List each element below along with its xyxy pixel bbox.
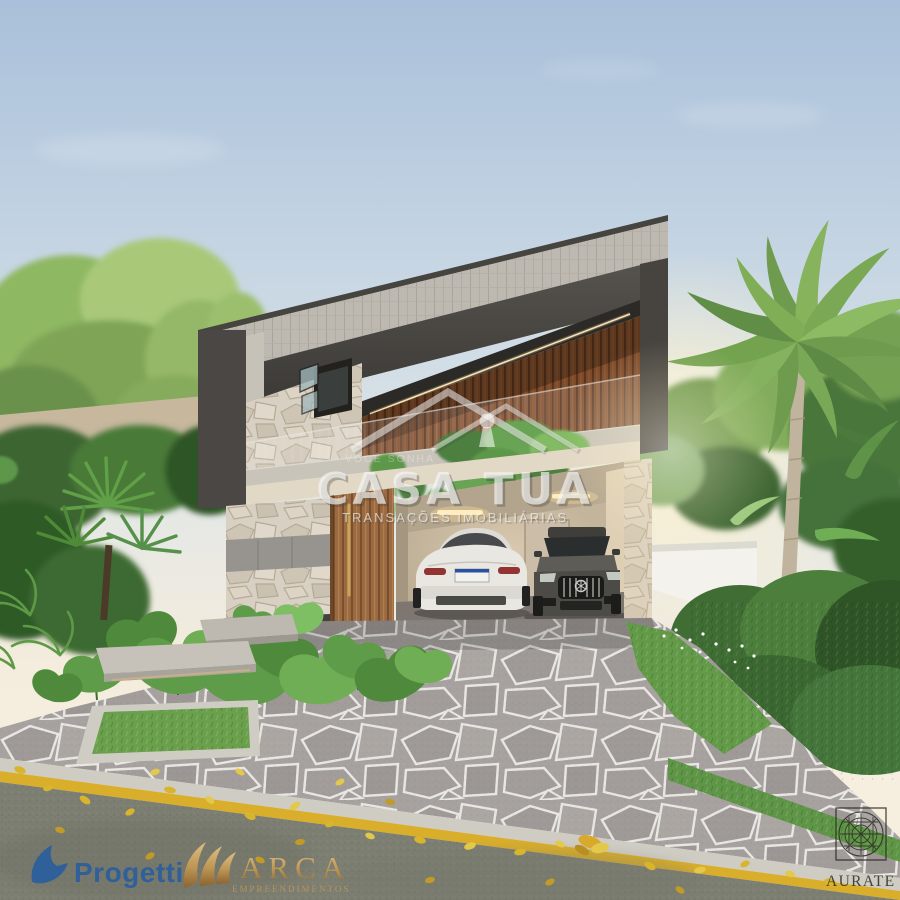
planter-grass-square [76,700,260,764]
progetti-label: Progetti [74,857,184,888]
aurate-label: AURATE [826,873,896,890]
stone-wall-gray-band [226,534,330,572]
arca-sublabel: EMPREENDIMENTOS [232,884,350,894]
property-render: VOCÊ SONHA CASA TUA CASA TUA TRANSAÇÕES … [0,0,900,900]
charcoal-column-left [198,330,246,509]
upper-window [300,358,352,418]
watermark-subtitle: TRANSAÇÕES IMOBILIÁRIAS [342,510,568,525]
arca-label: ARCA [240,850,350,885]
sun-haze [562,340,782,560]
watermark-brand: CASA TUA [316,464,594,515]
